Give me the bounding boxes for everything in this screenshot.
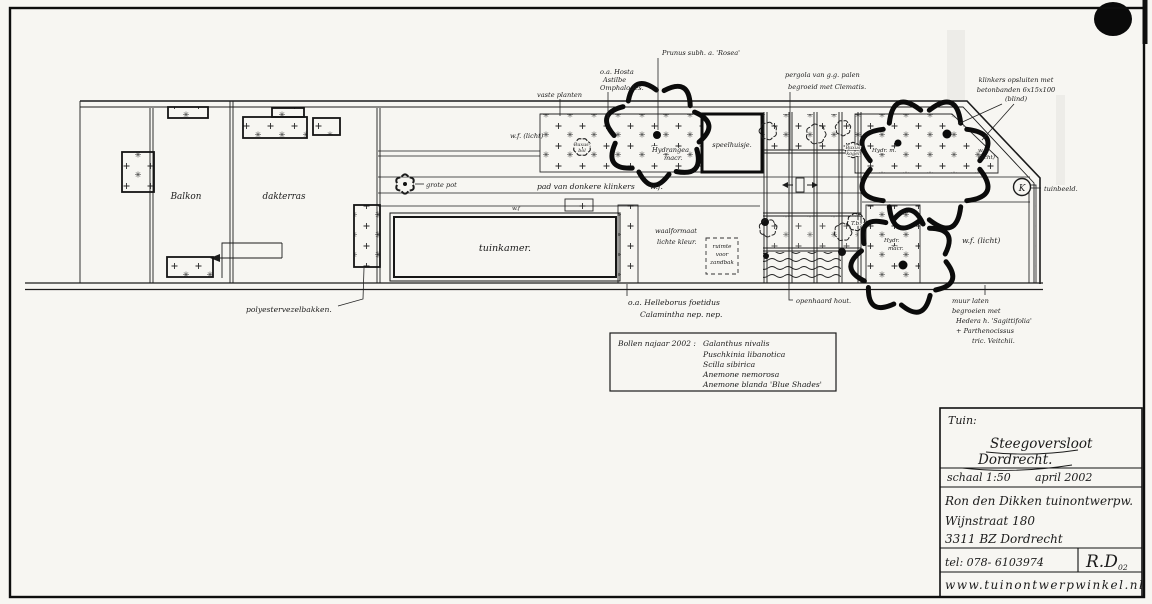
label-openhaard: openhaard hout.	[796, 297, 851, 305]
label-polyester: polyestervezelbakken.	[246, 305, 332, 314]
label-hydr-macr-1: Hydr.	[883, 238, 900, 244]
label-buxus-bol-2: bol	[578, 148, 586, 154]
title-project-name: Steegoversloot	[990, 436, 1093, 452]
label-helleborus-2: Calamintha nep. nep.	[640, 310, 722, 319]
bulb-item-2: Puschkinia libanotica	[702, 350, 786, 359]
label-zandbak-2: voor	[716, 252, 729, 258]
label-klinkers-3: (blind)	[1005, 95, 1027, 103]
label-hydr-macr-2: macr.	[888, 246, 904, 252]
label-waalformaat-2: lichte kleur.	[657, 238, 697, 246]
label-hosta-1: o.a. Hosta	[600, 68, 634, 76]
label-hydr-m: Hydr. m.	[871, 148, 897, 154]
bulb-item-3: Scilla sibirica	[703, 360, 756, 369]
title-block: Tuin: Steegoversloot Dordrecht. schaal 1…	[940, 408, 1144, 597]
label-muur-4: + Parthenocissus	[956, 327, 1015, 335]
label-wf-licht-left: w.f. (licht)	[510, 132, 544, 140]
grote-pot-dot	[403, 182, 407, 186]
title-scale: schaal 1:50	[947, 471, 1011, 484]
label-pergola-1: pergola van g.g. palen	[785, 71, 860, 79]
label-zandbak-3: zandbak	[709, 260, 734, 266]
bed-small-patch	[565, 199, 593, 211]
openhaard-wood-stack	[763, 252, 841, 282]
bed-helleborus	[618, 205, 638, 283]
label-zandbak-1: ruimte	[713, 244, 733, 250]
scanned-garden-plan-sheet: Prunus subh. a. 'Rosea' o.a. Hosta Astil…	[0, 0, 1152, 604]
label-wf-klein-1: w.f.	[978, 148, 988, 154]
bed-vaste-planten	[540, 114, 702, 172]
label-hosta-3: Omphalodes.	[600, 84, 644, 92]
garden-plan-svg: Prunus subh. a. 'Rosea' o.a. Hosta Astil…	[0, 0, 1152, 604]
title-monogram-year: 02	[1118, 563, 1128, 572]
label-wf-licht-rechts: w.f. (licht)	[962, 236, 1000, 245]
label-wf-klein-2: (licht)	[978, 154, 995, 161]
label-pad: pad van donkere klinkers	[537, 182, 635, 191]
label-waalformaat-1: waalformaat	[655, 227, 697, 235]
label-prunus: Prunus subh. a. 'Rosea'	[661, 49, 740, 57]
title-phone: tel: 078- 6103974	[945, 556, 1044, 569]
bulb-item-5: Anemone blanda 'Blue Shades'	[702, 380, 822, 389]
label-grote-pot: grote pot	[426, 181, 457, 189]
label-klinkers-2: betonbanden 6x15x100	[977, 86, 1055, 94]
planter-polyester	[354, 205, 380, 267]
bulb-item-4: Anemone nemorosa	[702, 370, 780, 379]
title-designer: Ron den Dikken tuinontwerpw.	[944, 494, 1133, 508]
label-wf-pad: w.f.	[650, 182, 663, 191]
title-monogram: R.D	[1085, 552, 1118, 572]
label-muur-1: muur laten	[952, 297, 989, 305]
bulb-item-1: Galanthus nivalis	[703, 339, 770, 348]
label-hosta-2: Astilbe	[602, 76, 626, 84]
label-muur-3: Hedera h. 'Sagittifolia'	[955, 317, 1032, 325]
label-k-marker: K	[1018, 184, 1026, 194]
label-buxus-bol-1: Buxus-	[573, 142, 591, 148]
scan-smudge	[947, 30, 965, 100]
planter	[313, 118, 340, 135]
scan-smudge	[1056, 95, 1065, 185]
label-dakterras: dakterras	[262, 192, 306, 202]
title-address-street: Wijnstraat 180	[945, 514, 1035, 528]
bulb-list-title: Bollen najaar 2002 :	[617, 339, 696, 348]
label-buxus-kogel-1: Buxus	[845, 145, 861, 151]
title-website: www.tuinontwerpwinkel.nl	[945, 578, 1144, 592]
label-buxus-kogel-2: kogel	[846, 151, 860, 157]
label-klinkers-1: klinkers opsluiten met	[979, 76, 1054, 84]
pergola-clematis-mid	[763, 216, 858, 248]
planter	[168, 107, 208, 118]
title-address-city: 3311 BZ Dordrecht	[945, 532, 1063, 546]
pergola-clematis-top	[763, 114, 858, 151]
label-vaste-planten: vaste planten	[537, 91, 582, 99]
label-tuinbeeld: tuinbeeld.	[1044, 185, 1078, 193]
planter	[167, 257, 213, 277]
bed-right-edge-strip	[1029, 185, 1036, 283]
title-date: april 2002	[1035, 471, 1092, 484]
label-balkon: Balkon	[170, 192, 202, 202]
label-hydrangea-2: macr.	[664, 154, 682, 162]
label-speelhuisje: speelhuisje.	[712, 141, 752, 149]
label-muur-2: begroeien met	[952, 307, 1001, 315]
label-wf-top: w.f	[512, 206, 521, 212]
label-helleborus-1: o.a. Helleborus foetidus	[628, 298, 720, 307]
label-tb: T.b.	[851, 221, 861, 227]
label-hydrangea-1: Hydrangea	[651, 146, 689, 154]
label-muur-5: tric. Veitchii.	[972, 337, 1015, 345]
title-tuin-label: Tuin:	[948, 414, 977, 427]
planter	[243, 117, 307, 138]
label-pergola-2: begroeid met Clematis.	[788, 83, 866, 91]
label-tuinkamer: tuinkamer.	[479, 243, 531, 254]
planter	[272, 108, 304, 117]
planter	[122, 152, 154, 192]
title-project-city: Dordrecht.	[977, 452, 1052, 468]
